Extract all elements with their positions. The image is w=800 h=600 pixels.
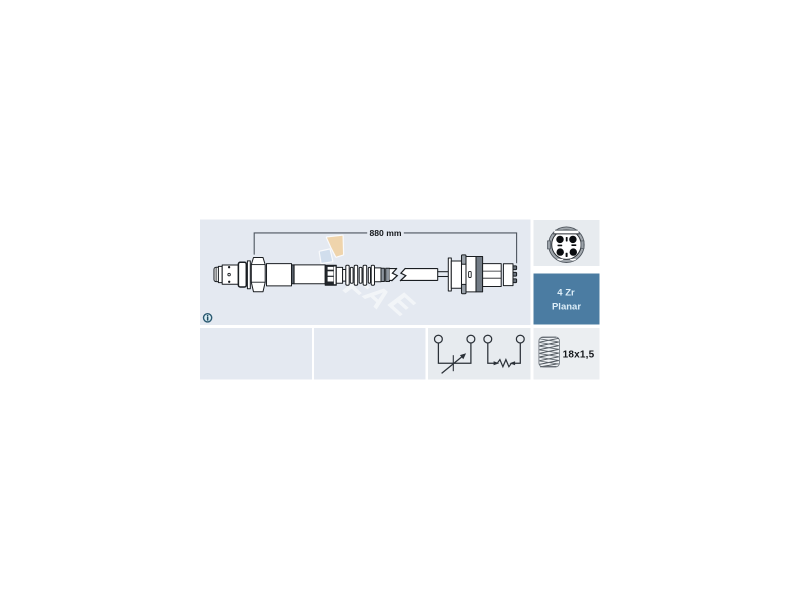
svg-text:Planar: Planar — [552, 302, 581, 313]
svg-text:18x1,5: 18x1,5 — [563, 350, 595, 361]
svg-text:4 Zr: 4 Zr — [557, 288, 575, 299]
svg-text:880 mm: 880 mm — [369, 228, 401, 238]
